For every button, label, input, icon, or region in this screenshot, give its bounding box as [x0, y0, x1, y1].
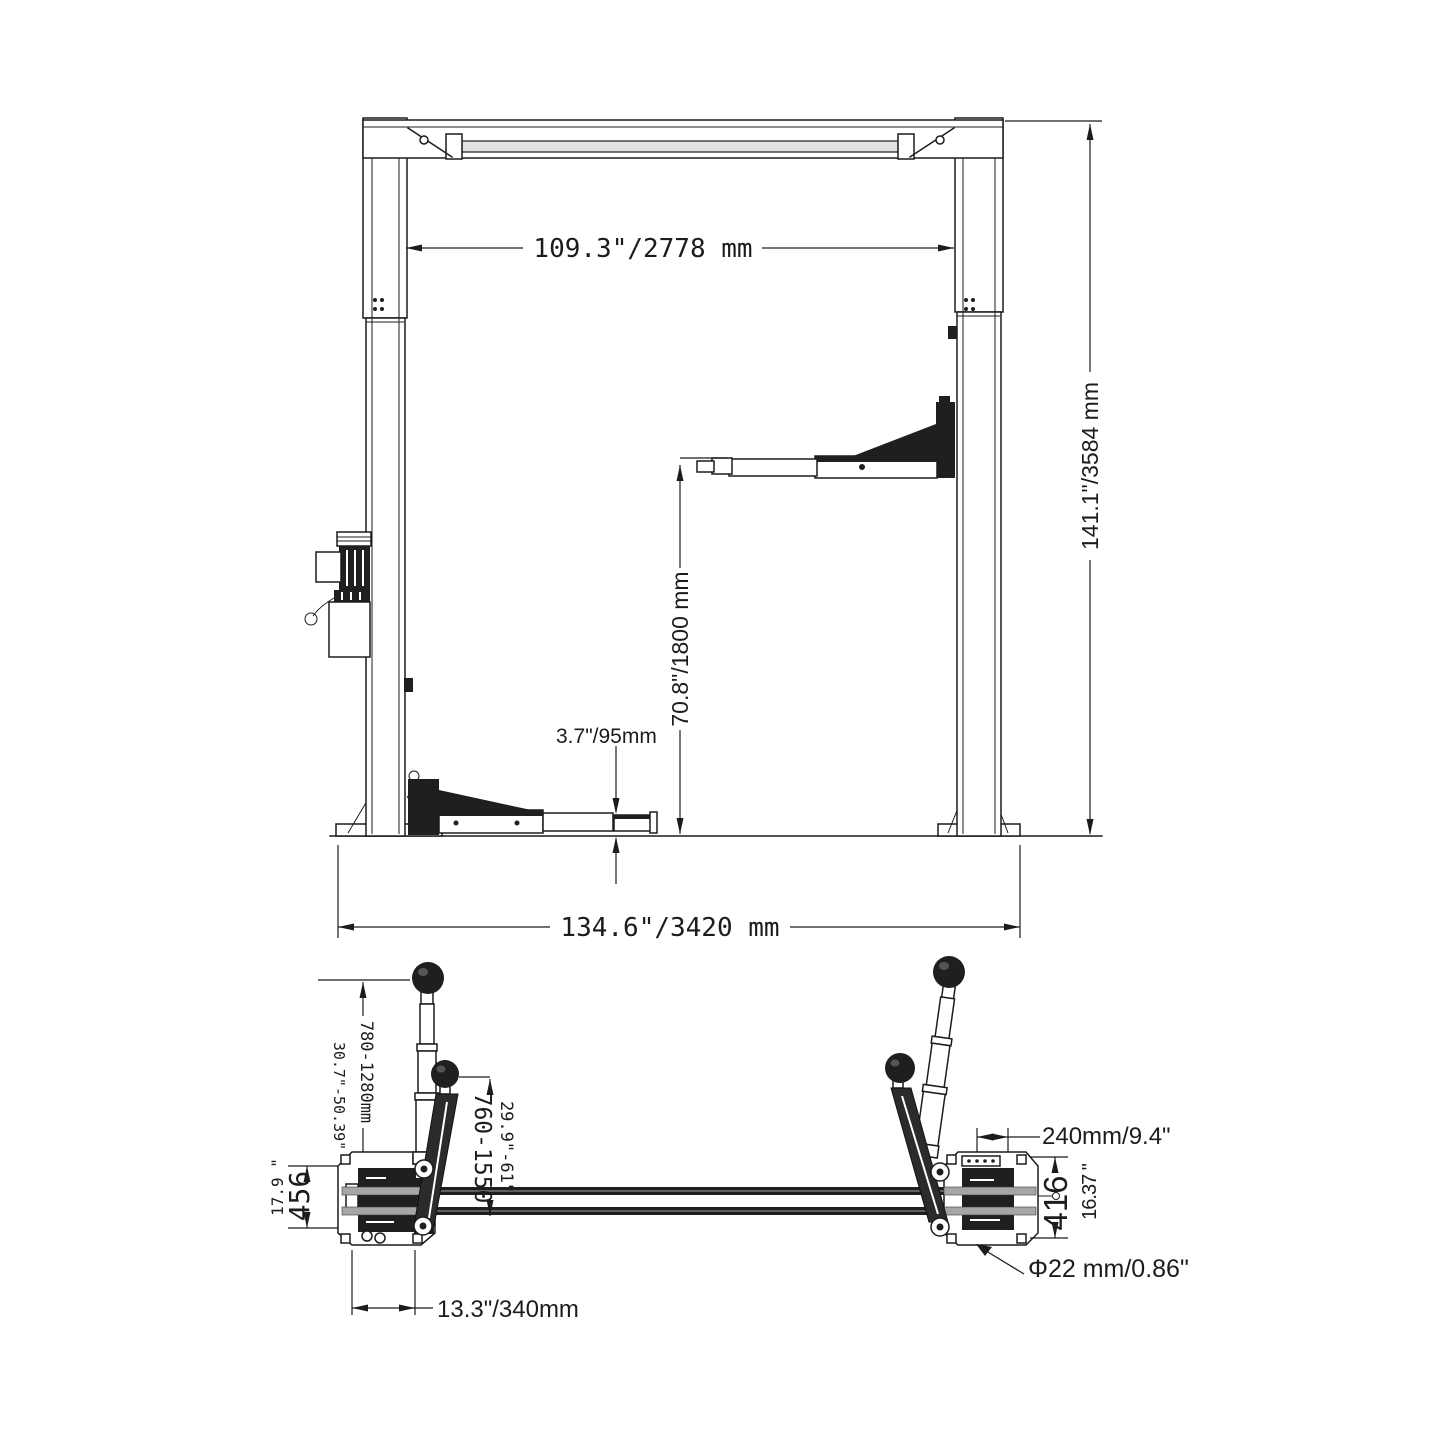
dim-rear-arm-in-label: 29.9"-61"	[496, 1101, 516, 1193]
dim-rear-arm-mm-label: 760-1550	[469, 1093, 495, 1204]
dim-lift-height: 70.8"/1800 mm	[667, 458, 727, 834]
dim-base-depth-mm-label: 456	[283, 1171, 316, 1222]
dim-overall-width: 134.6"/3420 mm	[338, 845, 1020, 943]
lift-arm-raised	[697, 396, 955, 478]
hydraulic-power-unit	[305, 532, 371, 657]
left-column	[363, 118, 413, 836]
arm-gusset	[848, 424, 936, 460]
lift-arm-lowered	[408, 771, 657, 835]
lift-pad-plan	[431, 1060, 459, 1088]
pad-riser	[712, 458, 732, 474]
anchor-hole	[341, 1155, 350, 1164]
dim-base-depth: 17.9 " 456	[268, 1158, 338, 1228]
front-elevation-view: 109.3"/2778 mm 141.1"/3584 mm 70.8"/1800…	[305, 118, 1103, 943]
overhead-beam	[363, 120, 1003, 159]
dim-overall-height: 141.1"/3584 mm	[1005, 121, 1103, 835]
lift-pad-plan	[412, 962, 444, 994]
dim-front-arm-in-label: 30.7"-50.39"	[330, 1042, 348, 1150]
arm-inner-tube	[543, 813, 613, 831]
dim-anchor-hole: Φ22 mm/0.86"	[976, 1244, 1189, 1283]
dim-inside-width-label: 109.3"/2778 mm	[533, 234, 752, 264]
lock-release-tab	[404, 678, 413, 692]
lift-pad-plan	[885, 1053, 915, 1083]
dim-base-width: 13.3"/340mm	[352, 1250, 579, 1323]
dim-plate-height-in-label: 16.37 "	[1079, 1163, 1101, 1220]
dim-carriage-width-label: 240mm/9.4"	[1042, 1123, 1171, 1150]
dim-inside-width: 109.3"/2778 mm	[406, 234, 954, 264]
right-column	[948, 118, 1003, 836]
dim-front-arm-reach: 780-1280mm 30.7"-50.39"	[318, 980, 410, 1152]
pad-end-cap	[650, 812, 657, 833]
dim-front-arm-mm-label: 780-1280mm	[356, 1021, 376, 1123]
dim-anchor-hole-label: Φ22 mm/0.86"	[1028, 1255, 1189, 1283]
anchor-hole	[947, 1234, 956, 1243]
overhead-safety-bar	[462, 141, 898, 152]
dim-pad-height-label: 3.7"/95mm	[556, 725, 657, 748]
dim-pad-height: 3.7"/95mm	[556, 725, 657, 884]
lift-technical-drawing-page: 109.3"/2778 mm 141.1"/3584 mm 70.8"/1800…	[0, 0, 1445, 1445]
dim-lift-height-label: 70.8"/1800 mm	[667, 571, 693, 726]
carriage	[408, 779, 439, 835]
arm-inner-tube	[729, 459, 817, 476]
dim-overall-width-label: 134.6"/3420 mm	[560, 913, 779, 943]
dim-carriage-width: 240mm/9.4"	[977, 1123, 1171, 1152]
lift-pad-plan	[933, 956, 965, 988]
anchor-hole	[1017, 1155, 1026, 1164]
oil-reservoir	[329, 602, 370, 657]
plan-view: 780-1280mm 30.7"-50.39" 760-1550 29.9"-6…	[268, 956, 1189, 1323]
two-post-lift-drawing: 109.3"/2778 mm 141.1"/3584 mm 70.8"/1800…	[0, 0, 1445, 1445]
dim-base-width-label: 13.3"/340mm	[437, 1296, 579, 1323]
lock-release-tab	[948, 326, 957, 339]
junction-box	[316, 552, 341, 582]
anchor-hole	[947, 1155, 956, 1164]
anchor-hole	[1017, 1234, 1026, 1243]
anchor-hole	[341, 1234, 350, 1243]
lift-pad	[697, 461, 714, 472]
dim-overall-height-label: 141.1"/3584 mm	[1077, 382, 1103, 550]
dim-plate-height: 416 16.37 "	[1030, 1157, 1101, 1238]
dim-plate-height-mm-label: 416	[1037, 1175, 1074, 1230]
dim-rear-arm-reach: 760-1550 29.9"-61"	[459, 1077, 516, 1216]
